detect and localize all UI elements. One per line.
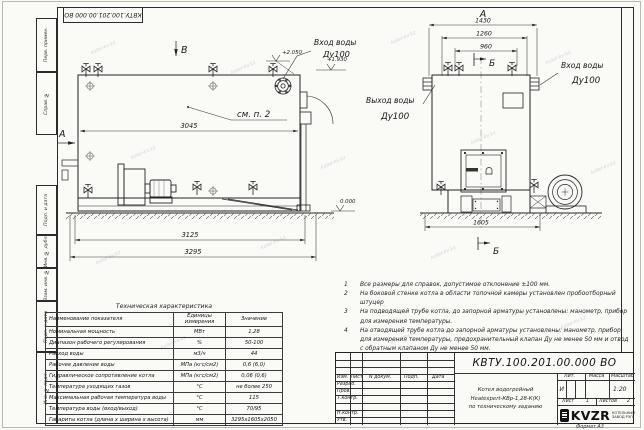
spec-row: Габариты котла (длина х ширина х высота)…: [46, 415, 283, 426]
water-inlet-dn: Ду100: [322, 49, 350, 59]
tb-mass-header: Масса: [589, 374, 604, 379]
spec-value: 115: [226, 393, 283, 404]
spec-unit: °С: [174, 393, 226, 404]
inlet-flange: [275, 78, 291, 94]
left-view-dimensions: [57, 41, 355, 261]
spec-name: Габариты котла (длина х ширина х высота): [46, 415, 174, 426]
note-item: 3 На подводящей трубе котла, до запорной…: [344, 308, 632, 326]
note-text: На боковой стенке котла в области топочн…: [360, 290, 632, 308]
tb-doc-number: КВТУ.100.201.00.000 ВО: [454, 353, 635, 373]
spec-unit: %: [174, 338, 226, 349]
tb-product-line1: Котел водогрейный: [478, 386, 534, 394]
note-item: 1 Все размеры для справок, допустимое от…: [344, 281, 632, 290]
dim-1260: 1260: [476, 31, 492, 38]
spec-name: Гидравлическое сопротивление котла: [46, 371, 174, 382]
spec-value: 1,28: [226, 327, 283, 338]
note-item: 4 На отводящей трубе котла до запорной а…: [344, 327, 632, 354]
see-note-label: см. п. 2: [237, 110, 270, 120]
note-text: Все размеры для справок, допустимое откл…: [360, 281, 550, 290]
tb-product-line3: по техническому заданию: [469, 403, 543, 411]
spec-name: Диапазон рабочего регулирования: [46, 338, 174, 349]
spec-unit: °С: [174, 382, 226, 393]
kvzr-logo-sub2: ЗАВОД РЭП: [612, 415, 635, 419]
spec-name: Номинальная мощность: [46, 327, 174, 338]
spec-table: Наименование показателя Единицы измерени…: [45, 312, 283, 426]
spec-row: Гидравлическое сопротивление котлаМПа (к…: [46, 371, 283, 382]
note-number: 3: [344, 308, 353, 326]
note-text: На отводящей трубе котла до запорной арм…: [360, 327, 632, 354]
tb-sheet-value: 1: [586, 399, 589, 404]
spec-unit: МПа (кгс/см2): [174, 371, 226, 382]
format-note: Формат А3: [576, 424, 604, 430]
note-number: 1: [344, 281, 353, 290]
spec-unit: м3/ч: [174, 349, 226, 360]
spec-name: Максимальная рабочая температура воды: [46, 393, 174, 404]
tb-col-list: Лист: [351, 375, 363, 380]
note-number: 2: [344, 290, 353, 308]
note-text: На подводящей трубе котла, до запорной а…: [360, 308, 632, 326]
spec-row: Номинальная мощностьМВт1,28: [46, 327, 283, 338]
tb-col-sign: Подп.: [404, 375, 419, 380]
spec-name: Температура уходящих газов: [46, 382, 174, 393]
view-marker-b: В: [181, 45, 188, 56]
tb-row-razrab: Разраб.: [337, 382, 356, 387]
spec-value: 70/95: [226, 404, 283, 415]
tb-col-doc: N докум.: [369, 375, 391, 380]
spec-unit: мм: [174, 415, 226, 426]
dim-1430: 1430: [475, 18, 491, 25]
kvzr-logo-subtext: КОТЕЛЬНЫЙ ЗАВОД РЭП: [612, 411, 635, 420]
spec-unit: МВт: [174, 327, 226, 338]
tb-lit-header: Лит.: [564, 374, 575, 379]
left-view-texts: 3045 3125 3295 В А +2.050 +1.930 0.000 с…: [58, 38, 356, 256]
water-inlet-dn-right: Ду100: [571, 76, 601, 86]
drawing-sheet: kotel-kv.kz kotel-kv.kz kotel-kv.kz kote…: [0, 0, 644, 430]
manufacturer-logo: KVZR КОТЕЛЬНЫЙ ЗАВОД РЭП: [557, 405, 635, 425]
notes-list: 1 Все размеры для справок, допустимое от…: [344, 281, 632, 354]
tb-scale-value: 1:20: [613, 386, 626, 393]
tb-col-date: Дата: [432, 375, 444, 380]
elevation-top: +2.050: [282, 50, 303, 56]
tb-row-nkontr: Н.контр.: [337, 411, 358, 416]
spec-row: Диапазон рабочего регулирования%50-100: [46, 338, 283, 349]
spec-row: Температура уходящих газов°Сне более 250: [46, 382, 283, 393]
tb-row-prov: Пров.: [337, 389, 351, 394]
spec-header-value: Значение: [226, 313, 283, 327]
spec-value: 0,6 (6,0): [226, 360, 283, 371]
water-inlet-label: Вход воды: [314, 38, 356, 47]
dim-3295: 3295: [185, 248, 202, 256]
spec-row: Расход водым3/ч44: [46, 349, 283, 360]
spec-value: 3295х1605х2050: [226, 415, 283, 426]
water-outlet-dn: Ду100: [380, 112, 410, 122]
spec-value: не более 250: [226, 382, 283, 393]
dim-3125: 3125: [182, 231, 199, 239]
water-outlet-label: Выход воды: [366, 96, 414, 105]
furnace-door: [461, 150, 506, 192]
tb-lit-value: И: [560, 386, 565, 393]
tb-row-tkontr: Т.контр.: [337, 396, 358, 401]
spec-row: Максимальная рабочая температура воды°С1…: [46, 393, 283, 404]
dim-960: 960: [480, 44, 492, 51]
spec-section: Техническая характеристика Наименование …: [45, 303, 283, 426]
spec-row: Рабочее давление водыМПа (кгс/см2)0,6 (6…: [46, 360, 283, 371]
spec-unit: °С: [174, 404, 226, 415]
elevation-zero: 0.000: [340, 199, 356, 205]
spec-name: Температура воды (вход/выход): [46, 404, 174, 415]
note-item: 2 На боковой стенке котла в области топо…: [344, 290, 632, 308]
spec-value: 50-100: [226, 338, 283, 349]
outlet-pipe: [297, 92, 333, 211]
tb-product-line2: Heatexpert-КВр-1,28-К(К): [471, 395, 541, 403]
spec-table-title: Техническая характеристика: [45, 303, 283, 310]
title-block: Изм. Лист N докум. Подп. Дата Разраб. Пр…: [335, 352, 634, 424]
section-marker-b-bottom: Б: [493, 247, 499, 257]
right-view-texts: А 1430 1260 960 1605 Б Б Вход воды Ду100…: [366, 9, 603, 257]
spec-unit: МПа (кгс/см2): [174, 360, 226, 371]
tb-sheets-label: Листов: [599, 399, 617, 404]
water-inlet-label-right: Вход воды: [561, 61, 603, 70]
spec-row: Температура воды (вход/выход)°С70/95: [46, 404, 283, 415]
left-view-side: [62, 64, 334, 220]
section-marker-b-top: Б: [489, 59, 495, 69]
spec-value: 0,06 (0,6): [226, 371, 283, 382]
tb-scale-header: Масштаб: [611, 374, 634, 379]
tb-sheets-value: 2: [627, 399, 630, 404]
spec-header-name: Наименование показателя: [46, 313, 174, 327]
tb-sheet-label: Лист: [562, 399, 574, 404]
view-marker-a: А: [58, 129, 66, 140]
spec-value: 44: [226, 349, 283, 360]
kvzr-logo-word: KVZR: [571, 408, 610, 423]
dim-1605: 1605: [473, 220, 489, 227]
dim-3045: 3045: [181, 122, 198, 130]
spec-header-units: Единицы измерения: [174, 313, 226, 327]
burner-assembly: [118, 164, 176, 205]
spec-name: Рабочее давление воды: [46, 360, 174, 371]
note-number: 4: [344, 327, 353, 354]
blower-fan: [530, 175, 586, 213]
tb-row-utv: Утв.: [337, 418, 347, 423]
tb-product-name: Котел водогрейный Heatexpert-КВр-1,28-К(…: [454, 373, 557, 425]
spec-name: Расход воды: [46, 349, 174, 360]
kvzr-logo-icon: [560, 409, 569, 422]
tb-col-izm: Изм.: [337, 375, 348, 380]
